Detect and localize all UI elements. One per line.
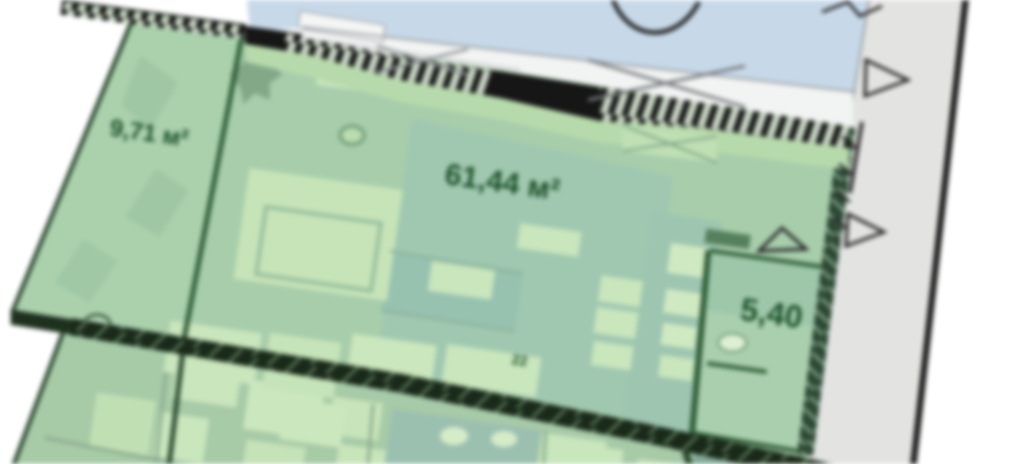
- svg-text:22: 22: [511, 351, 529, 369]
